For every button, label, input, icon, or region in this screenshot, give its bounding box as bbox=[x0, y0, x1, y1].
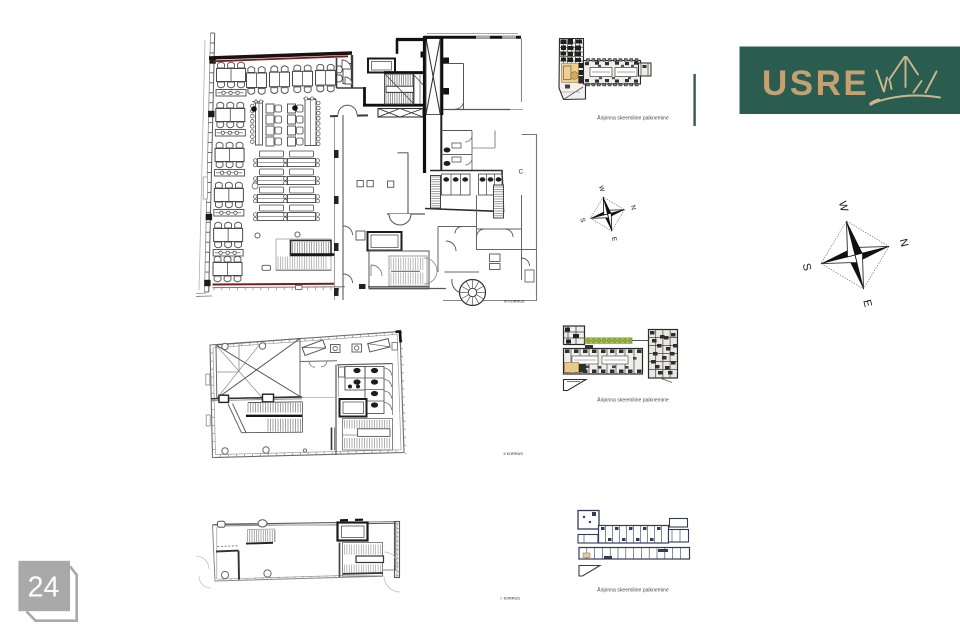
svg-text:N: N bbox=[629, 205, 637, 212]
svg-text:W: W bbox=[836, 200, 850, 214]
svg-text:E: E bbox=[860, 299, 873, 309]
svg-text:Äripinna skeemiline paiknemine: Äripinna skeemiline paiknemine bbox=[597, 397, 669, 404]
svg-text:Äripinna skeemiline paiknemine: Äripinna skeemiline paiknemine bbox=[597, 587, 669, 594]
svg-text:I KORRUS: I KORRUS bbox=[501, 597, 521, 601]
svg-text:USRE: USRE bbox=[762, 64, 869, 103]
svg-text:W: W bbox=[597, 185, 605, 193]
svg-text:Äripinna skeemiline paiknemine: Äripinna skeemiline paiknemine bbox=[597, 115, 669, 122]
svg-text:II KORRUS: II KORRUS bbox=[504, 452, 524, 456]
svg-text:C: C bbox=[519, 169, 524, 176]
svg-text:E: E bbox=[610, 236, 618, 243]
svg-text:S: S bbox=[578, 217, 586, 224]
svg-text:N: N bbox=[897, 238, 911, 249]
svg-text:III KORRUS: III KORRUS bbox=[504, 300, 525, 304]
svg-text:S: S bbox=[800, 262, 813, 272]
svg-text:24: 24 bbox=[28, 572, 60, 604]
